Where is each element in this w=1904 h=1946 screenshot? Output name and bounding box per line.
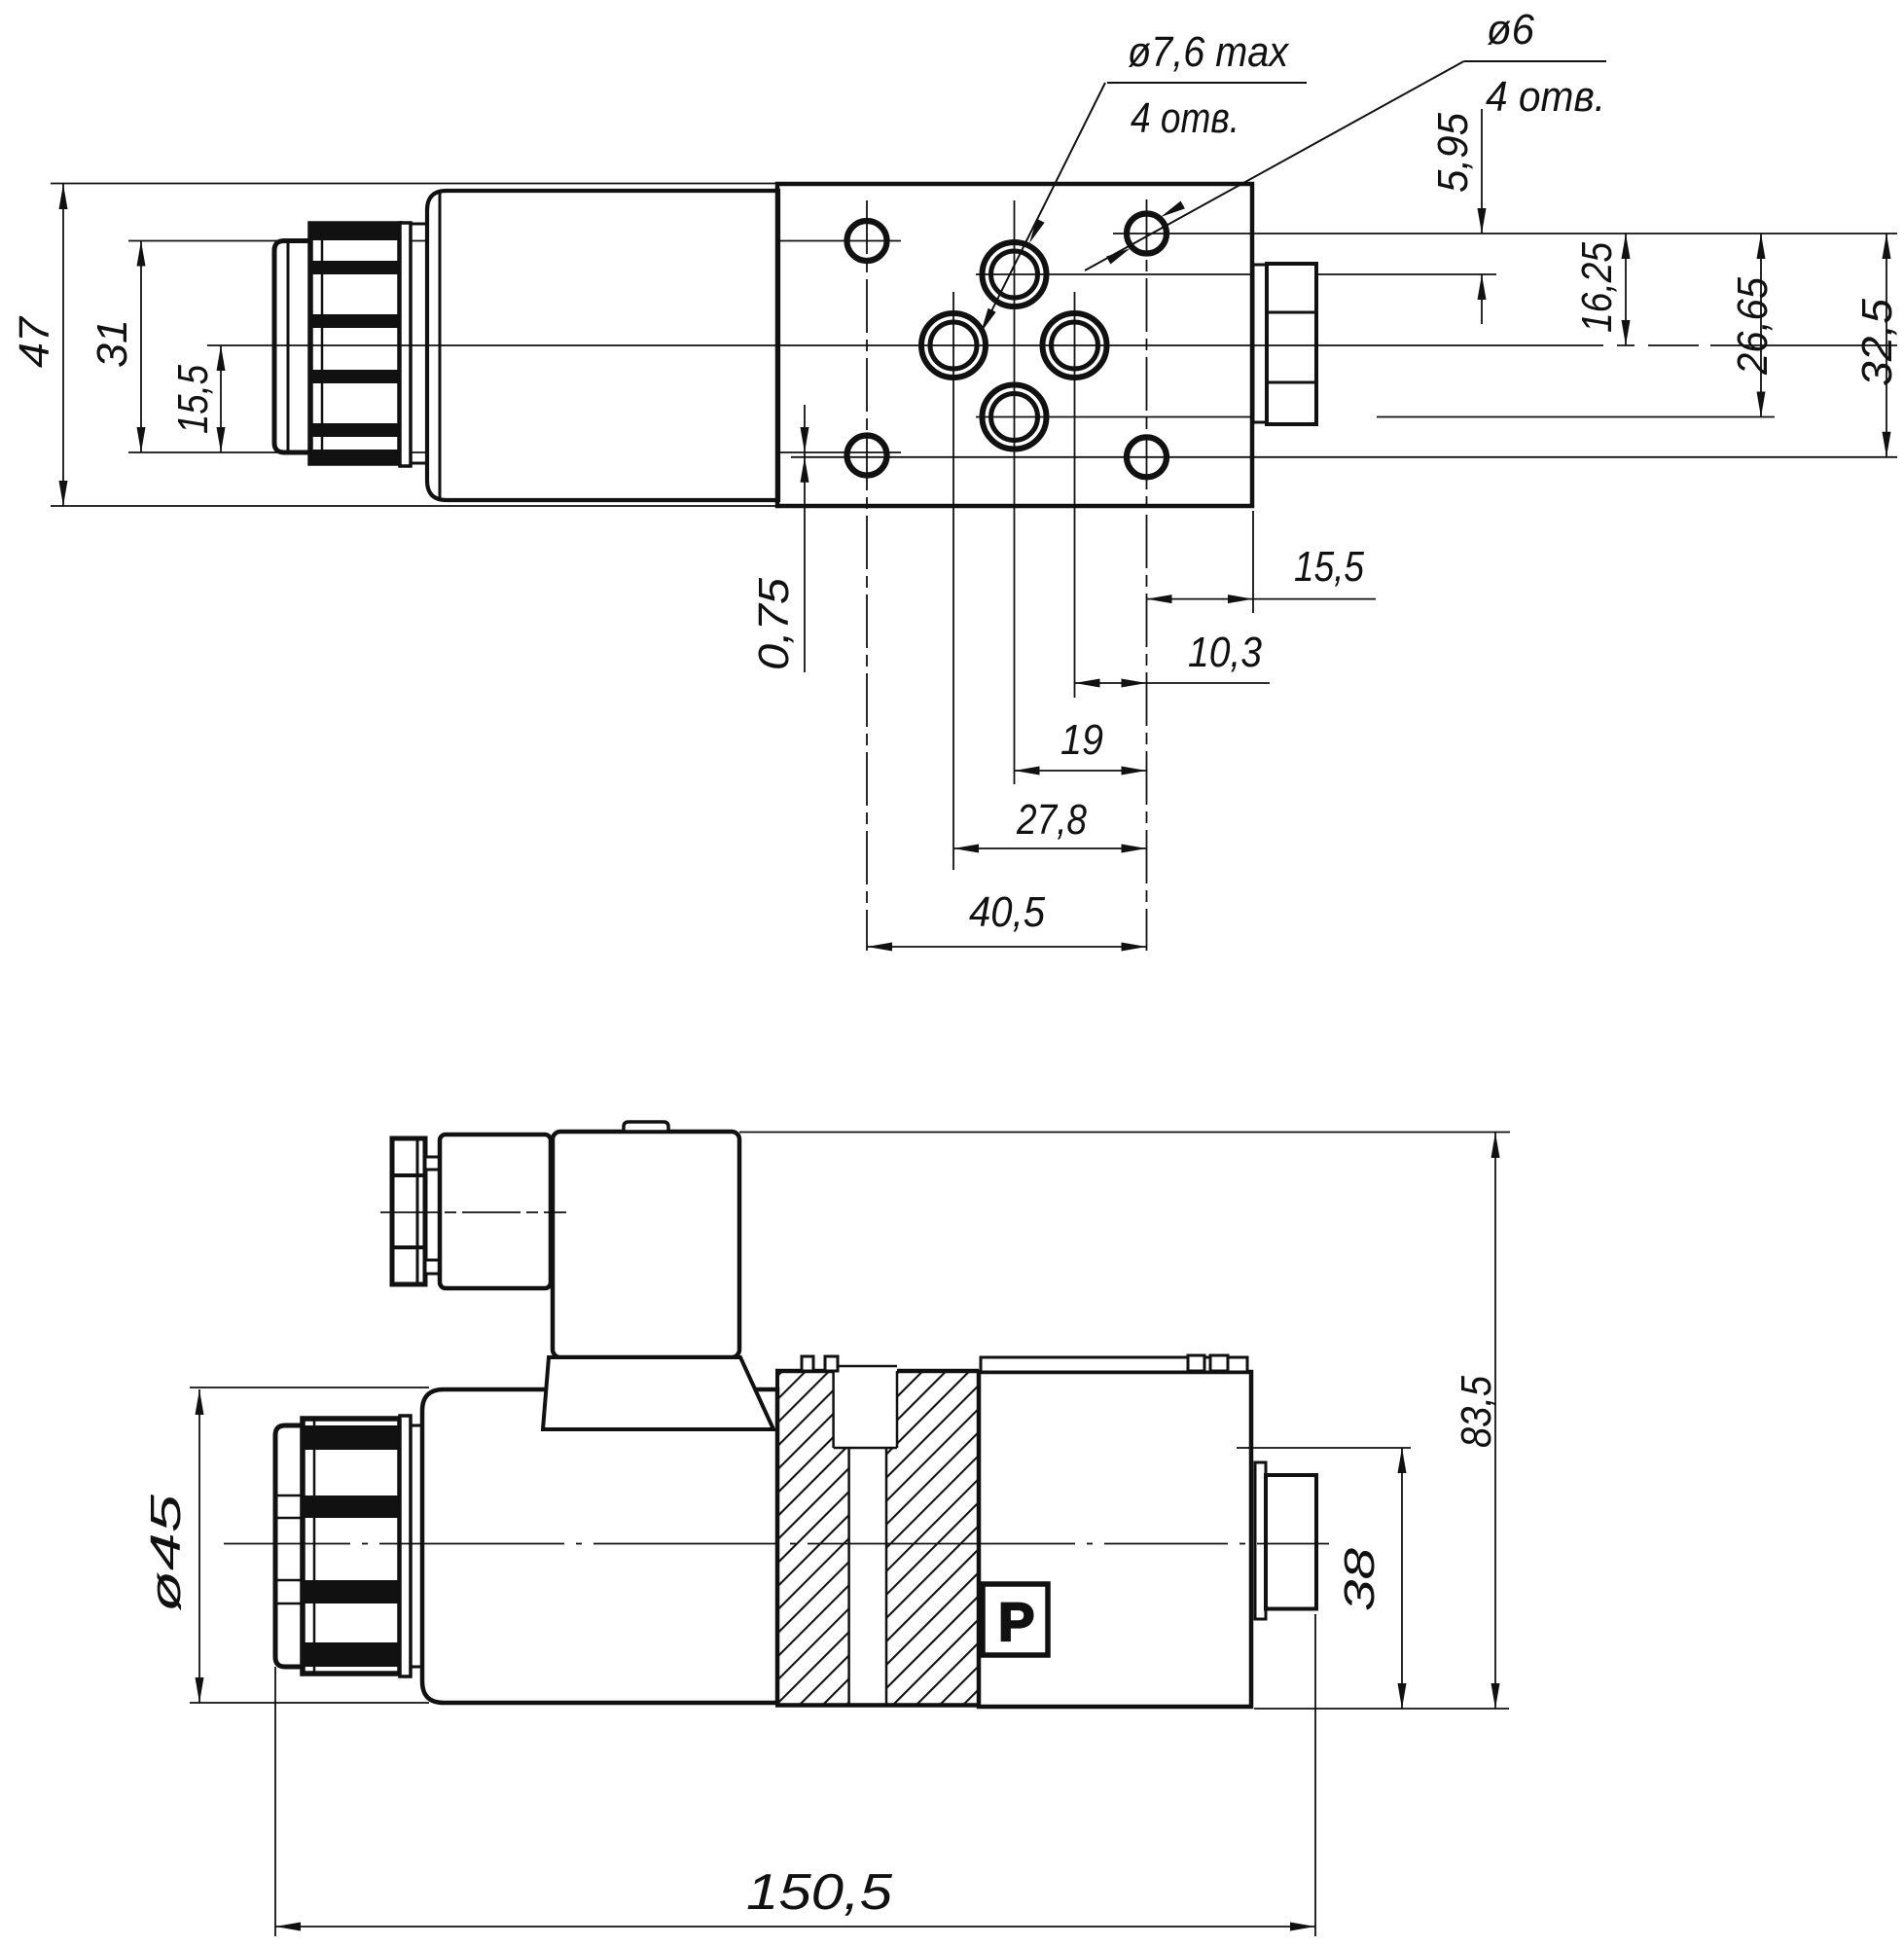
- svg-text:32,5: 32,5: [1853, 298, 1901, 386]
- svg-text:10,3: 10,3: [1188, 629, 1262, 676]
- svg-text:15,5: 15,5: [169, 365, 217, 434]
- svg-text:40,5: 40,5: [969, 888, 1045, 936]
- svg-text:ø6: ø6: [1487, 6, 1534, 54]
- svg-text:38: 38: [1336, 1547, 1383, 1611]
- svg-text:0,75: 0,75: [750, 577, 798, 670]
- svg-text:ø45: ø45: [142, 1494, 190, 1612]
- svg-text:16,25: 16,25: [1573, 242, 1621, 333]
- svg-text:26,65: 26,65: [1729, 277, 1777, 376]
- svg-text:4 отв.: 4 отв.: [1486, 73, 1605, 121]
- svg-text:31: 31: [89, 319, 136, 368]
- svg-text:47: 47: [11, 315, 58, 368]
- svg-text:150,5: 150,5: [746, 1864, 893, 1921]
- svg-text:5,95: 5,95: [1429, 112, 1477, 193]
- svg-text:P: P: [998, 1591, 1034, 1652]
- svg-text:15,5: 15,5: [1294, 543, 1364, 591]
- svg-text:27,8: 27,8: [1016, 796, 1087, 844]
- svg-text:ø7,6 max: ø7,6 max: [1128, 28, 1290, 76]
- svg-text:4 отв.: 4 отв.: [1131, 94, 1239, 142]
- svg-text:83,5: 83,5: [1453, 1376, 1500, 1448]
- svg-text:19: 19: [1060, 716, 1103, 764]
